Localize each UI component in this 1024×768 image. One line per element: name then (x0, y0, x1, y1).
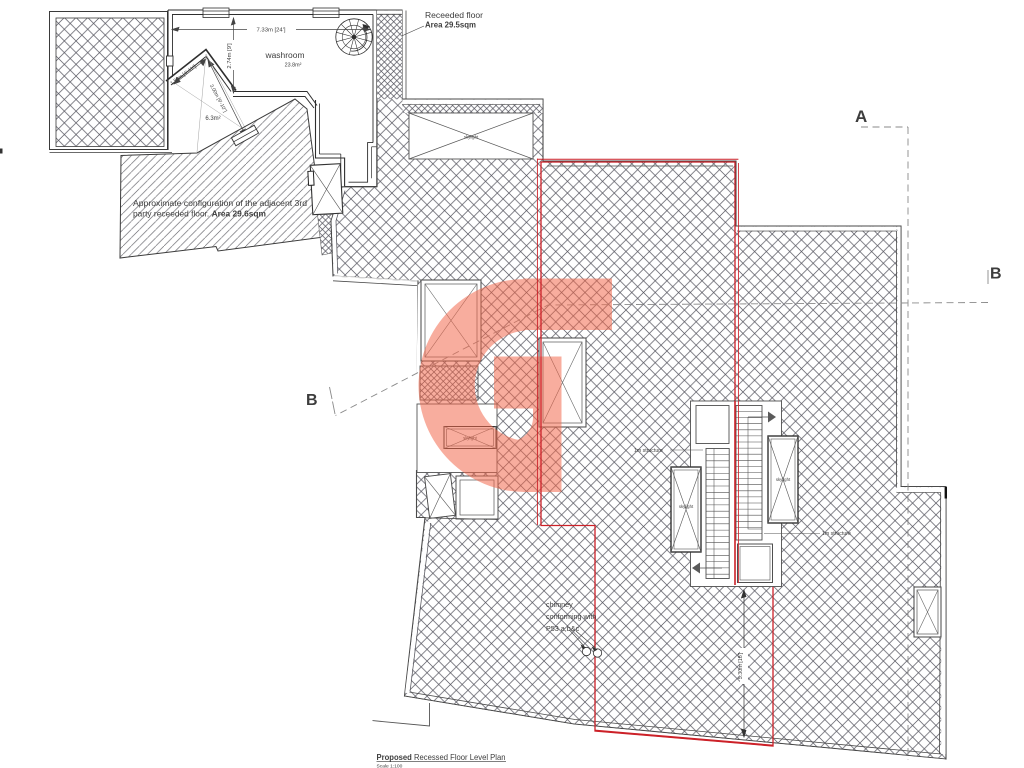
svg-text:skylight: skylight (679, 504, 694, 509)
svg-text:1m structure: 1m structure (634, 448, 663, 454)
svg-text:skylight: skylight (776, 477, 791, 482)
svg-text:conforming with: conforming with (546, 612, 596, 621)
svg-text:23.8m²: 23.8m² (285, 63, 302, 69)
svg-text:Receeded floor: Receeded floor (425, 11, 483, 20)
svg-text:2.74m [9']: 2.74m [9'] (227, 43, 233, 69)
svg-text:Proposed Recessed Floor Level: Proposed Recessed Floor Level Plan (377, 752, 506, 762)
svg-text:A: A (855, 107, 867, 126)
svg-text:Area 29.5sqm: Area 29.5sqm (425, 21, 476, 30)
svg-text:7.33m [24']: 7.33m [24'] (257, 27, 286, 33)
svg-text:chimney: chimney (546, 600, 573, 609)
svg-text:P53 a,b&c: P53 a,b&c (546, 624, 580, 633)
svg-text:B: B (990, 266, 1002, 283)
svg-text:1m structure: 1m structure (822, 531, 851, 537)
svg-text:B: B (306, 392, 318, 409)
svg-text:washroom: washroom (264, 51, 304, 60)
svg-text:Scale 1:100: Scale 1:100 (377, 764, 403, 768)
svg-text:party receeded floor. Area 29.: party receeded floor. Area 29.6sqm (133, 210, 266, 219)
svg-text:skylight: skylight (464, 135, 479, 140)
svg-text:6.3m²: 6.3m² (205, 116, 220, 122)
svg-text:5.30m [18']: 5.30m [18'] (738, 652, 744, 679)
svg-text:Approximate configuration of t: Approximate configuration of the adjacen… (133, 199, 307, 208)
